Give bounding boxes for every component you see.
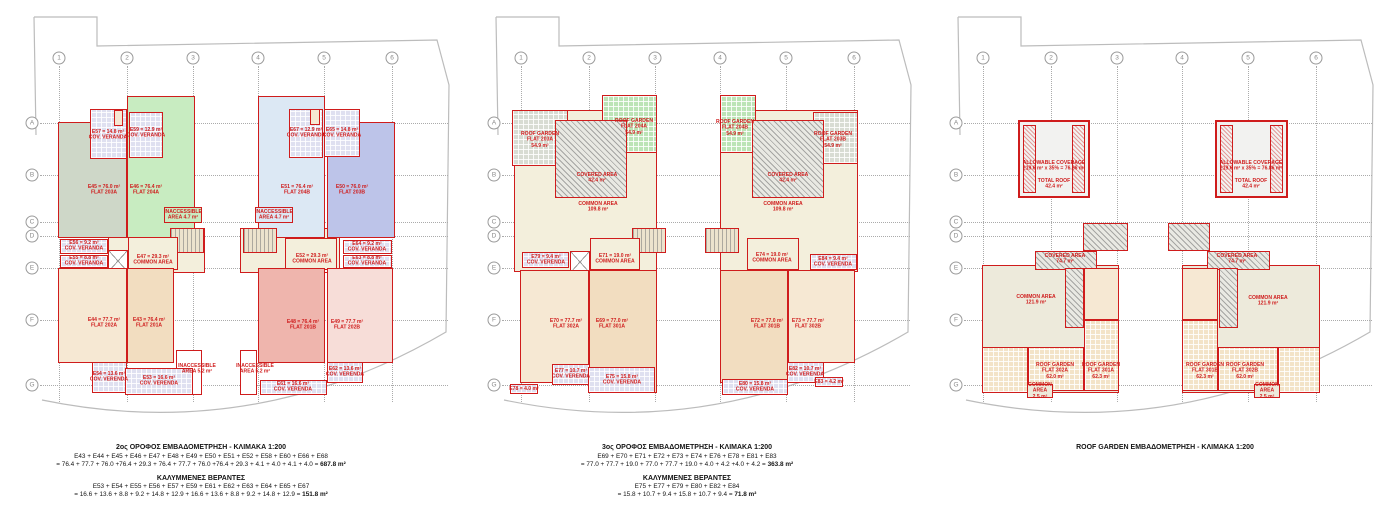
veranda-e61 xyxy=(260,380,327,395)
stairs-right xyxy=(243,228,277,253)
roof-garden-flat-301b xyxy=(1182,320,1218,391)
covered-arm-left xyxy=(1065,268,1084,328)
caption-floor-2: 2ος ΟΡΟΦΟΣ ΕΜΒΑΔΟΜΕΤΡΗΣΗ - ΚΛΙΜΑΚΑ 1:200… xyxy=(0,444,432,499)
grid-column-bubble-3: 3 xyxy=(1111,52,1124,65)
grid-row-bubble-E: E xyxy=(488,262,501,275)
grid-row-bubble-B: B xyxy=(488,169,501,182)
covered-area-left xyxy=(555,120,627,198)
plan-drawing-floor-3: 123456ABCDEFGROOF GARDENFLAT 203A54.9 m²… xyxy=(462,0,924,440)
common-e71 xyxy=(590,238,640,270)
veranda-e64 xyxy=(343,240,392,254)
veranda-e77 xyxy=(552,364,590,385)
grid-column-bubble-6: 6 xyxy=(848,52,861,65)
veranda-e75 xyxy=(588,367,655,393)
grid-column-bubble-2: 2 xyxy=(1045,52,1058,65)
grid-row-bubble-C: C xyxy=(26,216,39,229)
roof-box-left xyxy=(1018,120,1090,198)
grid-column-bubble-6: 6 xyxy=(386,52,399,65)
veranda-e59 xyxy=(129,112,163,158)
room-flat-202b xyxy=(327,268,393,363)
area-sum-line: = 77.0 + 77.7 + 19.0 + 77.0 + 77.7 + 19.… xyxy=(456,461,918,469)
grid-row-bubble-G: G xyxy=(488,379,501,392)
veranda-e53 xyxy=(125,368,193,395)
common-e47 xyxy=(128,237,178,270)
grid-row-bubble-E: E xyxy=(26,262,39,275)
caption-roof-garden: ROOF GARDEN ΕΜΒΑΔΟΜΕΤΡΗΣΗ - ΚΛΙΜΑΚΑ 1:20… xyxy=(934,444,1386,453)
rooflight-b xyxy=(310,109,320,125)
grid-column-bubble-4: 4 xyxy=(714,52,727,65)
verandas-title: ΚΑΛΥΜΜΕΝΕΣ ΒΕΡΑΝΤΕΣ xyxy=(0,475,432,482)
grid-row-bubble-F: F xyxy=(950,314,963,327)
veranda-e80 xyxy=(722,379,788,395)
grid-column-bubble-6: 6 xyxy=(1310,52,1323,65)
grid-column-bubble-3: 3 xyxy=(187,52,200,65)
covered-top-left xyxy=(1083,223,1128,251)
grid-row-bubble-A: A xyxy=(488,117,501,130)
room-flat-201b xyxy=(258,268,325,363)
tiles-left xyxy=(982,347,1028,393)
panel-floor-2: 123456ABCDEFGE45 = 76.0 m²FLAT 203AE46 =… xyxy=(0,0,462,523)
veranda-e62 xyxy=(327,362,363,383)
plan-title: 2ος ΟΡΟΦΟΣ ΕΜΒΑΔΟΜΕΤΡΗΣΗ - ΚΛΙΜΑΚΑ 1:200 xyxy=(0,444,432,451)
covered-top-right xyxy=(1168,223,1210,251)
room-flat-201a xyxy=(127,268,174,363)
veranda-e63 xyxy=(343,255,392,268)
grid-column-bubble-1: 1 xyxy=(977,52,990,65)
room-flat-301b xyxy=(720,270,788,383)
inaccessible-area-b xyxy=(255,207,293,223)
flat-strip-left xyxy=(1084,268,1119,320)
veranda-e79 xyxy=(522,252,569,268)
inaccessible-area-d xyxy=(240,350,257,395)
area-codes-line: E43 + E44 + E45 + E46 + E47 + E48 + E49 … xyxy=(0,453,432,461)
area-total: 363.8 m² xyxy=(768,461,794,468)
common-small-left xyxy=(1027,384,1053,398)
covered-arm-right xyxy=(1219,268,1238,328)
veranda-e84 xyxy=(810,254,857,270)
veranda-codes-line: E75 + E77 + E79 + E80 + E82 + E84 xyxy=(456,483,918,491)
veranda-total: 151.8 m² xyxy=(302,491,328,498)
verandas-title: ΚΑΛΥΜΜΕΝΕΣ ΒΕΡΑΝΤΕΣ xyxy=(456,475,918,482)
rooflight-a xyxy=(114,110,123,126)
plan-drawing-floor-2: 123456ABCDEFGE45 = 76.0 m²FLAT 203AE46 =… xyxy=(0,0,462,440)
roof-box-right xyxy=(1215,120,1288,198)
veranda-e78 xyxy=(510,384,538,394)
grid-row-bubble-F: F xyxy=(26,314,39,327)
grid-row-bubble-A: A xyxy=(950,117,963,130)
common-small-right xyxy=(1254,384,1280,398)
veranda-e56 xyxy=(60,239,108,254)
roof-garden-flat-301a xyxy=(1084,320,1119,391)
caption-floor-3: 3ος ΟΡΟΦΟΣ ΕΜΒΑΔΟΜΕΤΡΗΣΗ - ΚΛΙΜΑΚΑ 1:200… xyxy=(456,444,918,499)
grid-row-line-G xyxy=(502,385,910,386)
panel-floor-3: 123456ABCDEFGROOF GARDENFLAT 203A54.9 m²… xyxy=(462,0,924,523)
veranda-codes-line: E53 + E54 + E55 + E56 + E57 + E59 + E61 … xyxy=(0,483,432,491)
plan-title: 3ος ΟΡΟΦΟΣ ΕΜΒΑΔΟΜΕΤΡΗΣΗ - ΚΛΙΜΑΚΑ 1:200 xyxy=(456,444,918,451)
area-total: 687.8 m² xyxy=(320,461,346,468)
plan-drawing-roof-garden: 123456ABCDEFGALLOWABLE COVERAGE219.6 m² … xyxy=(924,0,1386,440)
grid-row-bubble-B: B xyxy=(26,169,39,182)
room-flat-302b xyxy=(788,270,855,363)
grid-row-bubble-G: G xyxy=(950,379,963,392)
panel-roof-garden: 123456ABCDEFGALLOWABLE COVERAGE219.6 m² … xyxy=(924,0,1386,523)
area-codes-line: E69 + E70 + E71 + E72 + E73 + E74 + E76 … xyxy=(456,453,918,461)
grid-row-bubble-C: C xyxy=(950,216,963,229)
grid-row-bubble-A: A xyxy=(26,117,39,130)
grid-row-bubble-B: B xyxy=(950,169,963,182)
common-e74 xyxy=(747,238,799,270)
grid-column-bubble-2: 2 xyxy=(121,52,134,65)
roof-garden-flat-204b xyxy=(720,95,756,153)
grid-row-bubble-D: D xyxy=(26,230,39,243)
area-sum-line: = 76.4 + 77.7 + 76.0 +76.4 + 29.3 + 76.4… xyxy=(0,461,432,469)
grid-column-bubble-5: 5 xyxy=(1242,52,1255,65)
veranda-sum-line: = 16.6 + 13.6 + 8.8 + 9.2 + 14.8 + 12.9 … xyxy=(0,491,432,499)
floor-plan-sheet: 123456ABCDEFGE45 = 76.0 m²FLAT 203AE46 =… xyxy=(0,0,1386,523)
grid-row-bubble-F: F xyxy=(488,314,501,327)
grid-column-bubble-3: 3 xyxy=(649,52,662,65)
veranda-e83 xyxy=(815,377,843,387)
grid-row-bubble-D: D xyxy=(488,230,501,243)
common-e52 xyxy=(285,238,337,270)
grid-row-bubble-G: G xyxy=(26,379,39,392)
grid-column-bubble-1: 1 xyxy=(53,52,66,65)
grid-row-bubble-E: E xyxy=(950,262,963,275)
grid-column-bubble-1: 1 xyxy=(515,52,528,65)
inaccessible-area-a xyxy=(164,207,202,223)
covered-area-right xyxy=(752,120,824,198)
grid-row-bubble-C: C xyxy=(488,216,501,229)
veranda-total: 71.8 m² xyxy=(734,491,756,498)
veranda-e65 xyxy=(324,109,360,157)
grid-column-bubble-2: 2 xyxy=(583,52,596,65)
grid-column-bubble-5: 5 xyxy=(780,52,793,65)
stairs-right xyxy=(705,228,739,253)
veranda-e54 xyxy=(92,362,127,393)
grid-column-bubble-4: 4 xyxy=(252,52,265,65)
room-flat-202a xyxy=(58,268,127,363)
grid-column-bubble-4: 4 xyxy=(1176,52,1189,65)
tiles-right xyxy=(1278,347,1320,393)
plan-title: ROOF GARDEN ΕΜΒΑΔΟΜΕΤΡΗΣΗ - ΚΛΙΜΑΚΑ 1:20… xyxy=(934,444,1386,451)
veranda-sum-line: = 15.8 + 10.7 + 9.4 + 15.8 + 10.7 + 9.4 … xyxy=(456,491,918,499)
veranda-e55 xyxy=(60,255,108,268)
grid-row-bubble-D: D xyxy=(950,230,963,243)
grid-column-bubble-5: 5 xyxy=(318,52,331,65)
flat-strip-right xyxy=(1182,268,1218,320)
